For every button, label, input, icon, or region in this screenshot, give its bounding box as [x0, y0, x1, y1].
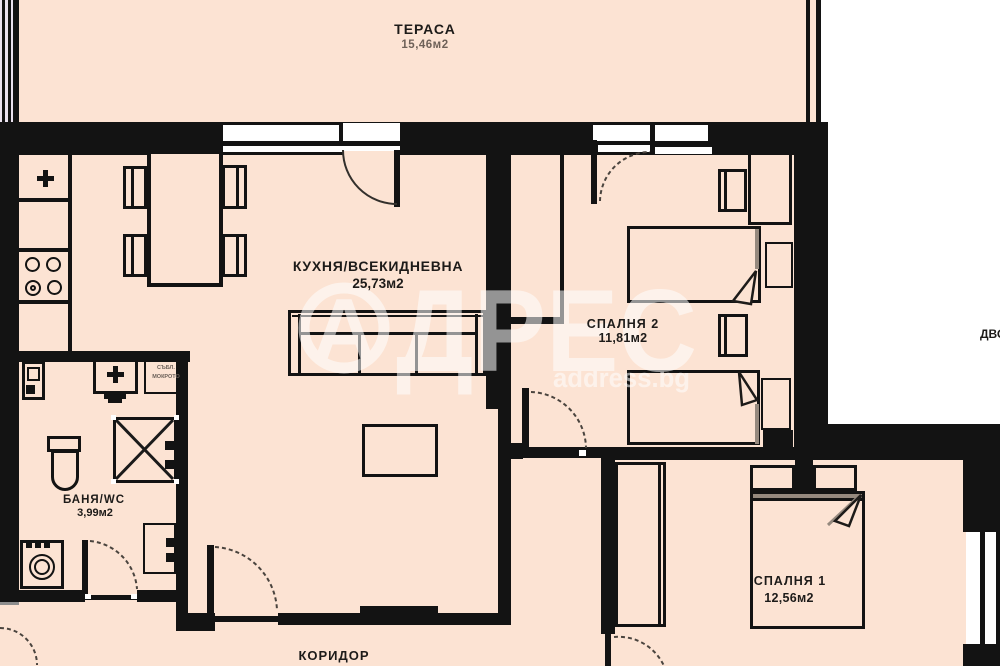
- svg-text:А: А: [312, 280, 376, 379]
- svg-text:address.bg: address.bg: [553, 363, 690, 393]
